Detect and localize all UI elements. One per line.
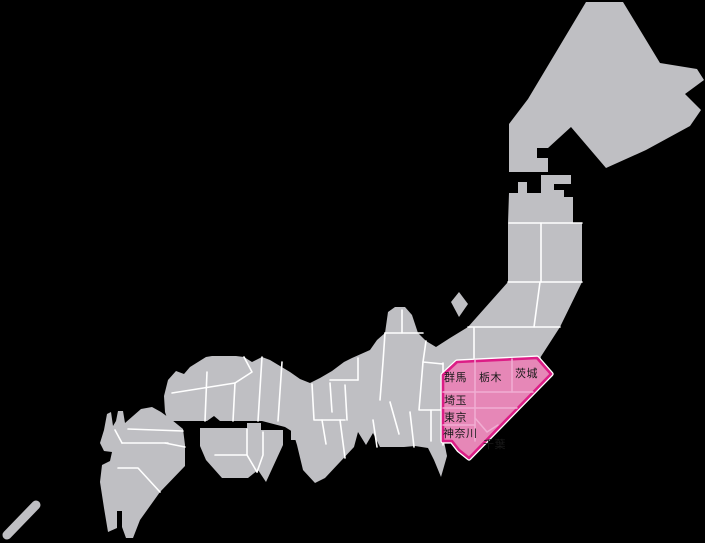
shikoku-island[interactable]: [200, 423, 283, 482]
kanto-region: 群馬 栃木 茨城 埼玉 東京 神奈川 千葉: [443, 358, 551, 458]
label-gunma: 群馬: [444, 370, 467, 384]
label-ibaraki: 茨城: [515, 366, 538, 380]
label-saitama: 埼玉: [444, 393, 467, 407]
label-chiba: 千葉: [483, 437, 506, 451]
label-tokyo: 東京: [444, 410, 467, 424]
label-kanagawa: 神奈川: [443, 426, 478, 440]
hokkaido-island[interactable]: [509, 2, 704, 172]
japan-prefecture-map: 群馬 栃木 茨城 埼玉 東京 神奈川 千葉: [0, 0, 705, 543]
okinawa-island[interactable]: [7, 505, 36, 535]
label-tochigi: 栃木: [479, 370, 502, 384]
sado-island[interactable]: [451, 292, 468, 317]
japan-map-stage: 群馬 栃木 茨城 埼玉 東京 神奈川 千葉: [0, 0, 705, 543]
